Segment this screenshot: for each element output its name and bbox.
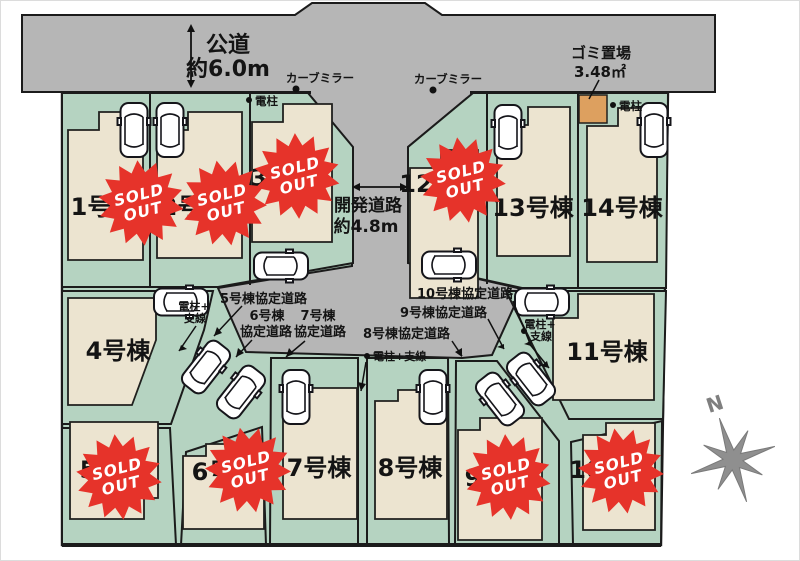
trash-area-size: 3.48㎡: [574, 63, 626, 81]
agreement-road-6-label: 6号棟: [249, 308, 285, 324]
car-icon: [154, 103, 187, 157]
agreement-road-7-label: 7号棟: [300, 308, 336, 324]
agreement-road-10-label: 10号棟協定道路: [417, 286, 514, 302]
car-icon: [492, 105, 525, 159]
lot-7-label: 7号棟: [287, 454, 353, 482]
utility-pole-dot: [246, 97, 252, 103]
curve-mirror-dot: [293, 86, 300, 93]
utility-pole-label: 電柱: [619, 99, 642, 113]
utility-pole-wire-dot: [364, 353, 370, 359]
compass-star: [678, 405, 789, 516]
development-road-width: 約4.8m: [334, 216, 399, 237]
car-icon: [254, 250, 308, 283]
lot-4-label: 4号棟: [86, 337, 152, 365]
development-road-label: 開発道路: [334, 195, 403, 216]
car-icon: [118, 103, 151, 157]
road-junction: [311, 88, 470, 97]
public-road-label: 公道: [206, 32, 250, 58]
curve-mirror-label: カーブミラー: [414, 72, 482, 86]
car-icon: [515, 286, 569, 319]
utility-pole-dot: [610, 102, 616, 108]
car-icon: [422, 249, 476, 282]
lot-13-label: 13号棟: [492, 194, 574, 222]
trash-area-label: ゴミ置場: [571, 44, 631, 62]
agreement-road-9-label: 9号棟協定道路: [400, 305, 488, 321]
agreement-road-7-label: 協定道路: [294, 324, 347, 340]
agreement-road-5-label: 5号棟協定道路: [220, 291, 308, 307]
agreement-road-8-label: 8号棟協定道路: [363, 326, 451, 342]
car-icon: [638, 103, 671, 157]
utility-pole-wire-label: 支線: [183, 311, 206, 325]
utility-pole-label: 電柱: [255, 94, 278, 108]
lot-11-label: 11号棟: [566, 338, 648, 366]
lot-14-label: 14号棟: [581, 194, 663, 222]
curve-mirror-dot: [430, 87, 437, 94]
public-road-width: 約6.0m: [186, 56, 270, 82]
utility-pole-wire-label: 電柱+支線: [373, 349, 426, 363]
utility-pole-wire-label: 電柱+: [178, 299, 209, 313]
trash-area-box: [579, 95, 607, 123]
site-plan: 公道 約6.0m 開発道路 約4.8m カーブミラー カーブミラー 電柱 電柱 …: [0, 0, 800, 561]
site-plan-drawing: 公道 約6.0m 開発道路 約4.8m カーブミラー カーブミラー 電柱 電柱 …: [0, 0, 800, 561]
car-icon: [417, 370, 450, 424]
compass-rose: N: [669, 379, 788, 516]
north-label: N: [703, 390, 726, 418]
car-icon: [280, 370, 313, 424]
curve-mirror-label: カーブミラー: [286, 71, 354, 85]
agreement-road-6-label: 協定道路: [240, 324, 293, 340]
utility-pole-wire-label: 電柱+: [524, 317, 555, 331]
lot-8-label: 8号棟: [378, 454, 444, 482]
utility-pole-wire-label: 支線: [529, 329, 552, 343]
